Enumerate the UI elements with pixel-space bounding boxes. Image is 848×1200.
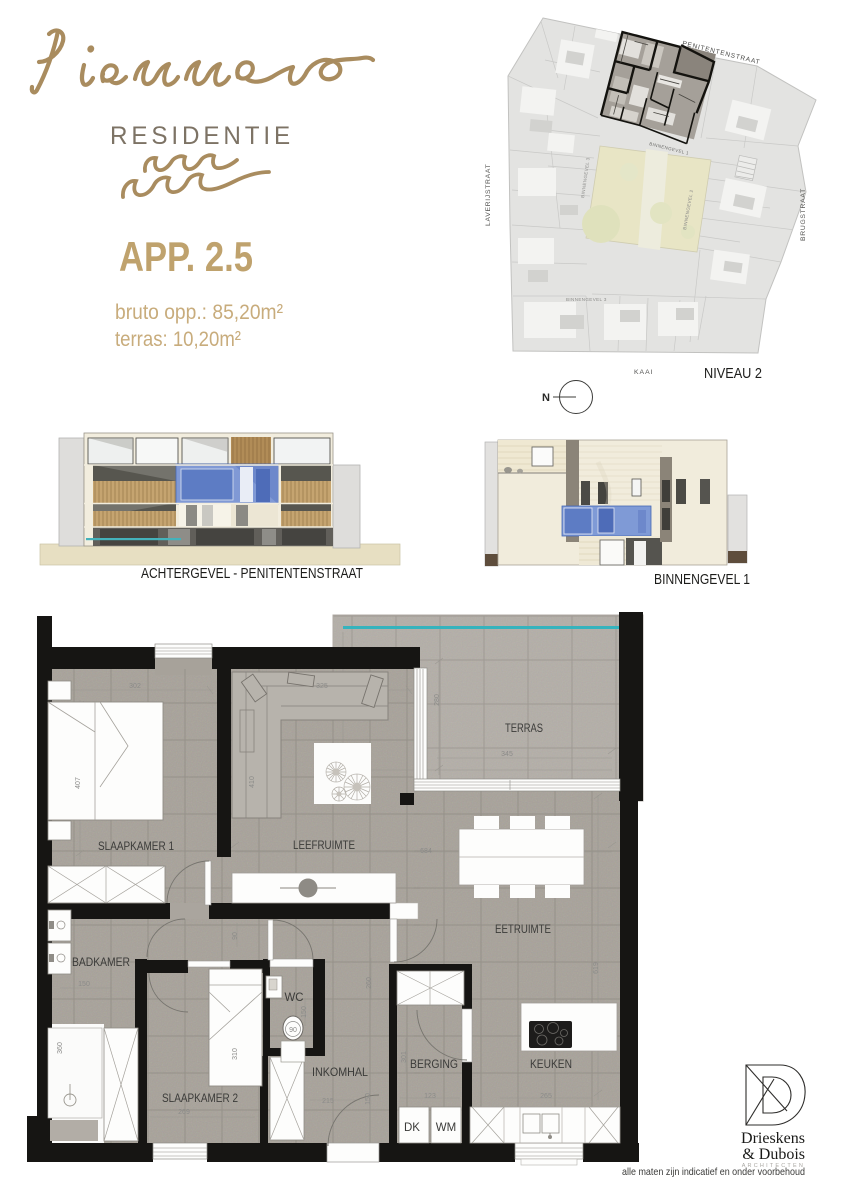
svg-text:SLAAPKAMER 1: SLAAPKAMER 1 xyxy=(98,839,174,853)
svg-text:325: 325 xyxy=(316,683,328,690)
svg-text:N: N xyxy=(542,392,550,404)
svg-text:90: 90 xyxy=(232,932,239,940)
svg-text:alle maten zijn indicatief en: alle maten zijn indicatief en onder voor… xyxy=(622,1166,805,1178)
svg-text:LEEFRUIMTE: LEEFRUIMTE xyxy=(293,838,355,852)
svg-text:terras: 10,20m²: terras: 10,20m² xyxy=(115,328,241,351)
svg-text:150: 150 xyxy=(78,981,90,988)
svg-text:BRUGSTRAAT: BRUGSTRAAT xyxy=(800,188,807,241)
svg-text:SLAAPKAMER 2: SLAAPKAMER 2 xyxy=(162,1091,238,1105)
svg-text:684: 684 xyxy=(420,848,432,855)
svg-text:123: 123 xyxy=(424,1093,436,1100)
svg-text:265: 265 xyxy=(540,1093,552,1100)
svg-text:310: 310 xyxy=(232,1048,239,1060)
svg-text:150: 150 xyxy=(365,1093,372,1105)
svg-text:280: 280 xyxy=(434,694,441,706)
svg-text:EETRUIMTE: EETRUIMTE xyxy=(495,922,551,936)
svg-text:WC: WC xyxy=(285,990,304,1004)
svg-text:TERRAS: TERRAS xyxy=(505,721,543,735)
svg-text:90: 90 xyxy=(289,1027,297,1034)
svg-text:150: 150 xyxy=(301,1006,308,1018)
svg-text:619: 619 xyxy=(593,962,600,974)
svg-text:BINNENGEVEL 3: BINNENGEVEL 3 xyxy=(566,297,607,302)
svg-text:DK: DK xyxy=(404,1122,420,1134)
svg-text:410: 410 xyxy=(249,776,256,788)
svg-text:302: 302 xyxy=(129,683,141,690)
svg-text:260: 260 xyxy=(366,977,373,989)
svg-text:BERGING: BERGING xyxy=(410,1057,458,1071)
svg-text:BADKAMER: BADKAMER xyxy=(72,955,130,969)
svg-text:bruto opp.: 85,20m²: bruto opp.: 85,20m² xyxy=(115,301,283,324)
svg-text:301: 301 xyxy=(401,1051,408,1063)
svg-text:NIVEAU 2: NIVEAU 2 xyxy=(704,366,762,382)
svg-text:APP. 2.5: APP. 2.5 xyxy=(119,233,253,280)
svg-text:WM: WM xyxy=(436,1122,456,1134)
svg-text:KAAI: KAAI xyxy=(634,369,654,376)
svg-text:KEUKEN: KEUKEN xyxy=(530,1057,572,1071)
svg-text:BINNENGEVEL 1: BINNENGEVEL 1 xyxy=(654,571,750,588)
svg-text:360: 360 xyxy=(57,1042,64,1054)
svg-text:215: 215 xyxy=(322,1098,334,1105)
svg-text:Drieskens: Drieskens xyxy=(741,1130,805,1147)
svg-text:INKOMHAL: INKOMHAL xyxy=(312,1065,368,1079)
svg-text:407: 407 xyxy=(75,777,82,789)
svg-text:LAVERIJSTRAAT: LAVERIJSTRAAT xyxy=(485,164,492,226)
svg-text:ACHTERGEVEL - PENITENTENSTRAAT: ACHTERGEVEL - PENITENTENSTRAAT xyxy=(141,565,363,582)
svg-text:& Dubois: & Dubois xyxy=(742,1146,805,1163)
svg-text:345: 345 xyxy=(501,751,513,758)
svg-text:269: 269 xyxy=(178,1109,190,1116)
svg-text:RESIDENTIE: RESIDENTIE xyxy=(110,122,294,150)
